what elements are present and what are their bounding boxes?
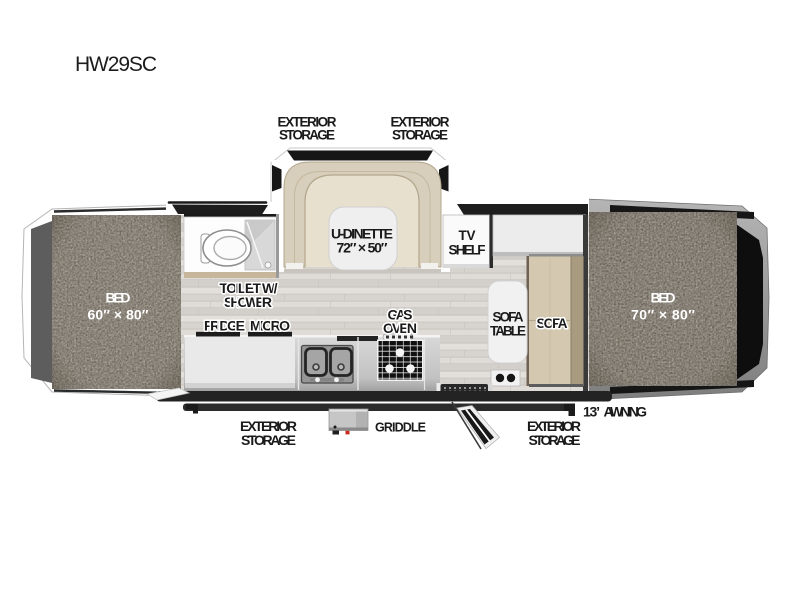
svg-text:TV: TV [459,228,476,243]
svg-text:OVEN: OVEN [383,320,417,336]
svg-text:TABLE: TABLE [490,324,526,339]
svg-text:SOFA: SOFA [493,310,524,325]
svg-text:13’: 13’ [583,404,600,420]
svg-text:STORAGE: STORAGE [392,128,448,143]
svg-text:STORAGE: STORAGE [241,432,296,448]
svg-text:BED: BED [106,290,131,306]
svg-text:SHELF: SHELF [449,243,486,258]
svg-text:BED: BED [651,290,676,306]
svg-text:SOFA: SOFA [537,316,568,331]
svg-text:72″ × 50″: 72″ × 50″ [337,240,388,256]
svg-text:70″ × 80″: 70″ × 80″ [631,307,695,323]
svg-text:AWNING: AWNING [604,404,648,420]
svg-text:GRIDDLE: GRIDDLE [375,421,426,435]
svg-text:FRIDGE: FRIDGE [204,318,245,334]
svg-text:MICRO: MICRO [250,318,290,334]
svg-text:HW29SC: HW29SC [75,53,157,76]
svg-text:STORAGE: STORAGE [529,432,581,448]
svg-text:SHOWER: SHOWER [224,294,272,310]
svg-text:60″ × 80″: 60″ × 80″ [88,307,149,323]
svg-text:STORAGE: STORAGE [279,128,335,143]
